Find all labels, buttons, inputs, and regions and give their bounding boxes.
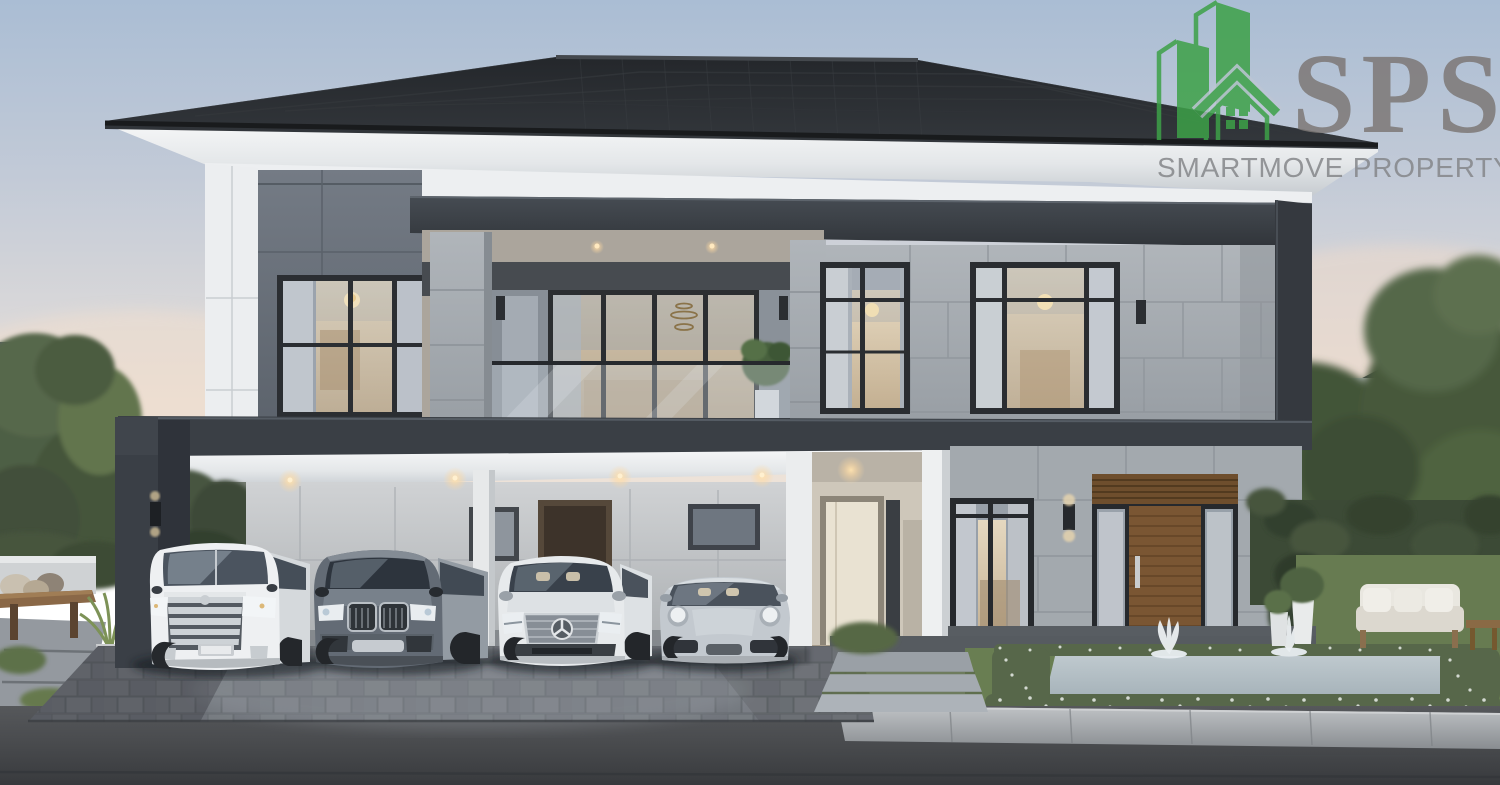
svg-text:SMARTMOVE PROPERTY: SMARTMOVE PROPERTY — [1157, 152, 1500, 183]
svg-text:SPS: SPS — [1292, 30, 1500, 157]
